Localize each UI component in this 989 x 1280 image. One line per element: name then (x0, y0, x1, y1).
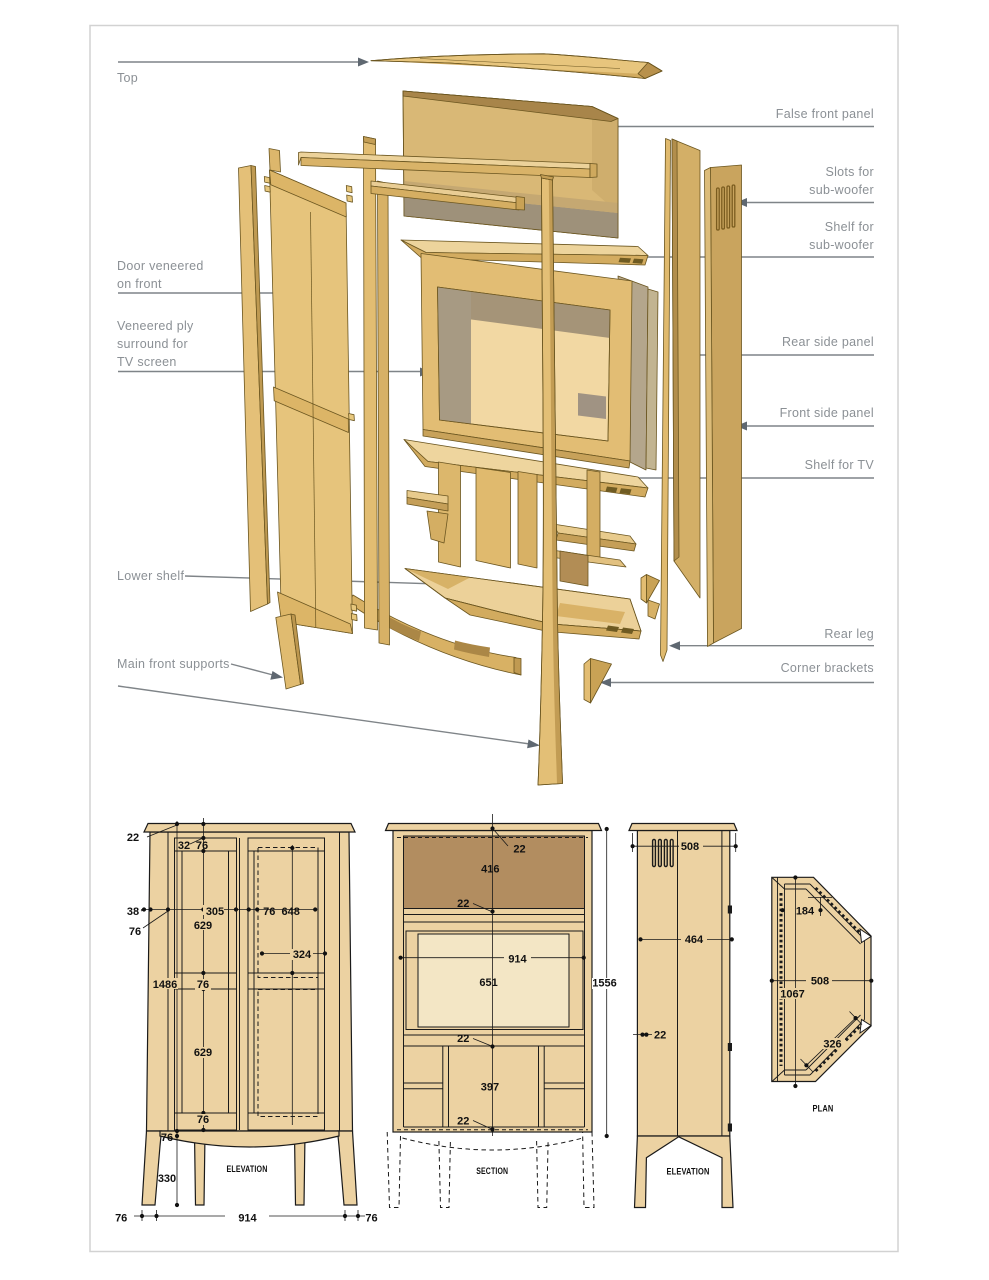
svg-text:629: 629 (194, 1047, 212, 1059)
svg-text:PLAN: PLAN (813, 1104, 834, 1114)
svg-text:76: 76 (365, 1213, 377, 1225)
svg-text:ELEVATION: ELEVATION (667, 1167, 710, 1177)
svg-text:22: 22 (457, 1033, 469, 1045)
svg-text:22: 22 (654, 1030, 666, 1042)
svg-text:Shelf for: Shelf for (825, 220, 874, 234)
svg-text:22: 22 (457, 1115, 469, 1127)
svg-text:sub-woofer: sub-woofer (809, 183, 874, 197)
svg-text:22: 22 (457, 898, 469, 910)
svg-text:914: 914 (238, 1213, 257, 1225)
svg-text:76: 76 (161, 1132, 173, 1144)
svg-text:surround for: surround for (117, 337, 188, 351)
svg-text:22: 22 (127, 832, 139, 844)
svg-text:76: 76 (129, 926, 141, 938)
svg-text:1486: 1486 (153, 979, 177, 991)
svg-text:397: 397 (481, 1082, 499, 1094)
svg-text:sub-woofer: sub-woofer (809, 238, 874, 252)
svg-text:508: 508 (681, 841, 699, 853)
svg-text:38: 38 (127, 906, 139, 918)
svg-text:76: 76 (263, 906, 275, 918)
svg-text:Top: Top (117, 71, 138, 85)
svg-text:648: 648 (282, 906, 300, 918)
svg-text:464: 464 (685, 934, 704, 946)
svg-text:76: 76 (197, 1114, 209, 1126)
svg-text:76: 76 (115, 1213, 127, 1225)
svg-text:1556: 1556 (592, 978, 616, 990)
svg-text:76: 76 (196, 840, 208, 852)
svg-text:22: 22 (513, 844, 525, 856)
svg-text:305: 305 (206, 906, 224, 918)
svg-text:Slots for: Slots for (825, 165, 874, 179)
svg-text:629: 629 (194, 920, 212, 932)
svg-text:Main front supports: Main front supports (117, 657, 230, 671)
svg-text:914: 914 (508, 954, 527, 966)
svg-text:324: 324 (293, 949, 312, 961)
svg-text:184: 184 (796, 906, 815, 918)
svg-text:330: 330 (158, 1173, 176, 1185)
svg-text:Veneered ply: Veneered ply (117, 319, 194, 333)
svg-text:Rear leg: Rear leg (824, 627, 874, 641)
svg-text:Front side panel: Front side panel (780, 406, 874, 420)
svg-text:Door veneered: Door veneered (117, 259, 204, 273)
svg-text:Rear side panel: Rear side panel (782, 335, 874, 349)
svg-text:False front panel: False front panel (776, 107, 874, 121)
svg-text:32: 32 (178, 840, 190, 852)
svg-text:Corner brackets: Corner brackets (781, 661, 874, 675)
svg-text:76: 76 (197, 979, 209, 991)
svg-text:Lower shelf: Lower shelf (117, 569, 184, 583)
svg-text:TV screen: TV screen (117, 355, 177, 369)
svg-text:326: 326 (823, 1039, 841, 1051)
svg-text:416: 416 (481, 864, 499, 876)
svg-text:508: 508 (811, 976, 829, 988)
svg-text:SECTION: SECTION (476, 1166, 508, 1176)
svg-text:on front: on front (117, 277, 162, 291)
svg-text:Shelf for TV: Shelf for TV (805, 458, 875, 472)
svg-text:ELEVATION: ELEVATION (227, 1164, 268, 1174)
svg-text:651: 651 (479, 977, 497, 989)
svg-text:1067: 1067 (780, 989, 804, 1001)
